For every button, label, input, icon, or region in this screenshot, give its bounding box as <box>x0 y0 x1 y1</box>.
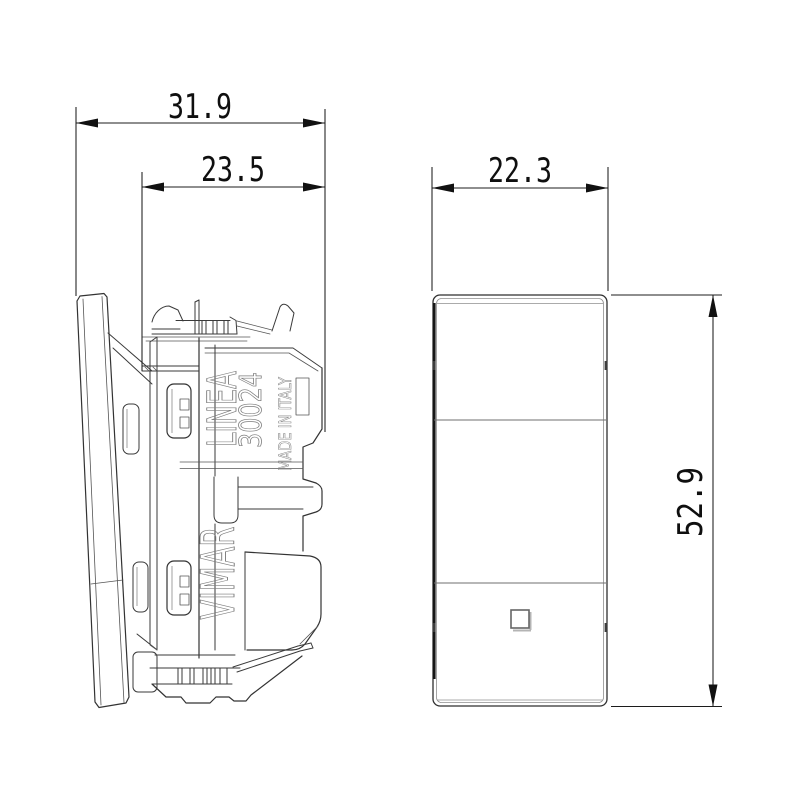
side-clip-upper <box>123 404 139 454</box>
top-clips <box>152 300 294 334</box>
front-view <box>433 295 608 706</box>
dimension-label-front-height: 52.9 <box>671 467 711 537</box>
dimension-label-overall-depth: 31.9 <box>168 87 232 127</box>
side-view-markings: LINEA 30024 MADE IN ITALY VIMAR <box>191 371 296 620</box>
indicator-window <box>511 610 531 631</box>
slot-window-upper <box>167 384 191 438</box>
dimension-front-height: 52.9 <box>611 295 722 707</box>
dimension-mechanism-depth: 23.5 <box>142 150 325 371</box>
model-number-marking: 30024 <box>234 372 269 448</box>
front-face-outline <box>433 295 607 706</box>
technical-drawing-page: LINEA 30024 MADE IN ITALY VIMAR 31.9 <box>0 0 800 800</box>
side-view: LINEA 30024 MADE IN ITALY VIMAR <box>77 294 322 708</box>
side-clip-lower <box>133 562 148 612</box>
dimension-label-front-width: 22.3 <box>488 151 552 191</box>
mounting-frame <box>108 333 199 692</box>
slot-window-lower <box>167 561 191 615</box>
label-panel <box>296 378 309 415</box>
dimension-front-width: 22.3 <box>432 151 608 291</box>
brand-marking: VIMAR <box>191 527 245 620</box>
dimension-label-mechanism-depth: 23.5 <box>201 150 265 190</box>
technical-drawing-canvas: LINEA 30024 MADE IN ITALY VIMAR 31.9 <box>0 0 800 800</box>
origin-marking: MADE IN ITALY <box>276 377 296 471</box>
